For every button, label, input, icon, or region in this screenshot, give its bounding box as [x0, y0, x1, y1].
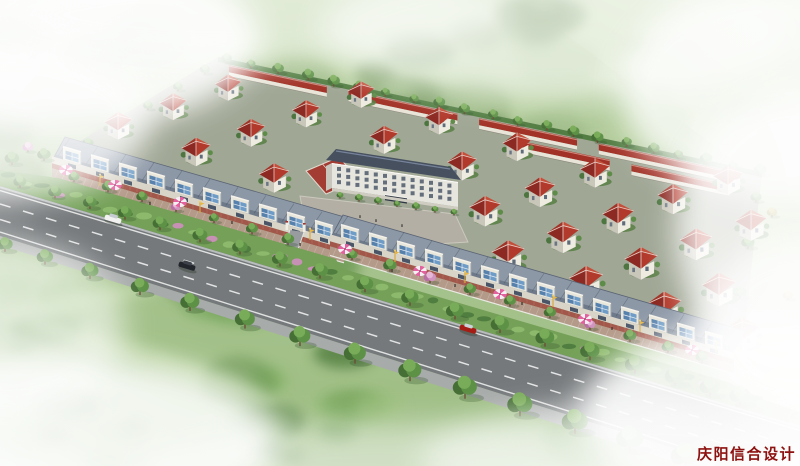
render-canvas: [0, 0, 800, 466]
designer-watermark: 庆阳信合设计: [697, 443, 796, 464]
aerial-rendering: 庆阳信合设计: [0, 0, 800, 466]
